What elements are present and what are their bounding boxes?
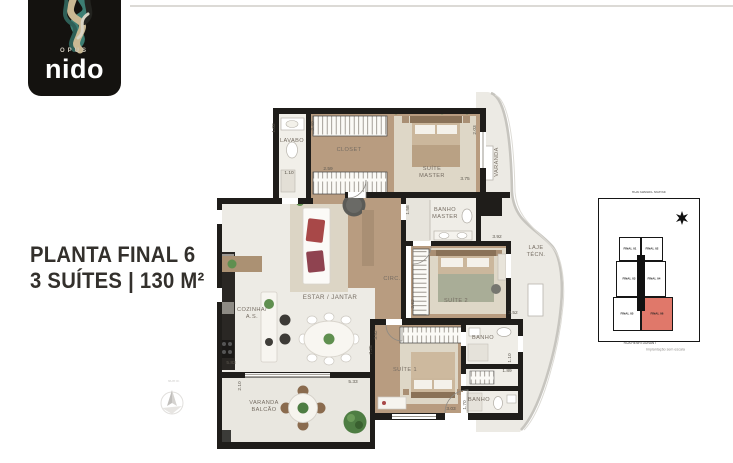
room-label-cozinha-2: A.S.: [246, 314, 258, 320]
keyplan-unit-2-label: FINAL 02: [646, 248, 659, 251]
room-label-laje-2: TÉCN.: [527, 251, 546, 258]
opus-nido-logo: OPUS nido: [28, 0, 121, 96]
keyplan-unit-3-label: FINAL 03: [622, 278, 635, 281]
room-label-circ: CIRC.: [383, 276, 400, 282]
keyplan-unit-1-label: FINAL 01: [624, 248, 637, 251]
laje-tecn-box: [528, 284, 543, 316]
room-label-cozinha-1: COZINHA/: [237, 307, 267, 313]
room-label-banho-master-1: BANHO: [434, 207, 456, 213]
page: { "logo": { "brand_top": "OPUS", "brand"…: [0, 0, 733, 458]
suite1-closet: [400, 327, 462, 343]
keyplan-building: FINAL 01 FINAL 02 FINAL 03 FINAL 04 FINA…: [613, 235, 677, 331]
dim-lavabo-width: 1.02: [271, 123, 277, 133]
north-arrow-icon: [156, 386, 190, 420]
room-label-suite-1: SUÍTE 1: [393, 366, 417, 373]
room-label-banho-2: BANHO: [468, 397, 490, 403]
north-label: NORTE: [168, 380, 179, 383]
top-divider-line: [130, 5, 733, 7]
room-label-suite-master-2: MASTER: [419, 173, 445, 179]
keyplan-unit-5-label: FINAL 05: [621, 313, 634, 316]
keyplan-core: [637, 255, 645, 311]
dim-balcony-width: 5.33: [348, 379, 358, 385]
dim-closet-width: 2.59: [323, 166, 333, 172]
dim-suite-2-depth: 2.62: [410, 299, 416, 309]
logo-brand: nido: [28, 54, 121, 85]
keyplan: RUA SAMUEL MORSE FINAL 01 FINAL 02 FINAL…: [598, 198, 700, 342]
room-label-lavabo: LAVABO: [280, 138, 304, 144]
keyplan-unit-6-label: FINAL 06: [651, 313, 664, 316]
dim-banho-1-depth: 1.10: [507, 353, 513, 363]
varanda-bench: [485, 146, 493, 180]
console-table: [362, 210, 374, 266]
north-star-icon: [675, 211, 689, 225]
closet-wardrobe-top: [313, 116, 387, 136]
dim-suite-2-width: 3.52: [508, 310, 518, 316]
keyplan-street-bottom: RUA HENRI DUNANT: [618, 342, 662, 411]
dim-lavabo-depth: 1.10: [284, 170, 294, 176]
dim-closet-height: 2.40: [310, 121, 316, 131]
plan-title-line2: 3 SUÍTES | 130 M²: [30, 268, 205, 294]
dim-banho-master-width: 3.92: [492, 234, 502, 240]
balcony-plant-icon: [344, 411, 367, 434]
plan-title-line1: PLANTA FINAL 6: [30, 242, 205, 268]
room-label-suite-master-1: SUÍTE: [423, 165, 441, 172]
room-label-estar-jantar: ESTAR / JANTAR: [303, 294, 358, 301]
room-label-closet: CLOSET: [337, 147, 362, 153]
dim-living-height: 7.25: [368, 345, 374, 355]
room-label-varanda-balcao-1: VARANDA: [249, 400, 278, 406]
keyplan-unit-4-label: FINAL 04: [647, 278, 660, 281]
keyplan-street-top: RUA SAMUEL MORSE: [622, 191, 677, 194]
dim-balcony-depth: 2.10: [237, 381, 243, 391]
dim-banho-2-depth: 1.70: [462, 400, 468, 410]
north-compass: NORTE: [156, 380, 190, 420]
dim-suite-1-width: 3.03: [446, 406, 456, 412]
closet-wardrobe-bottom: [313, 172, 387, 194]
dim-kitchen: 5.83: [226, 360, 236, 366]
room-label-suite-2: SUÍTE 2: [444, 297, 468, 304]
dining-table-icon: [299, 313, 359, 365]
dim-banho-hall: 1.89: [502, 368, 512, 374]
shower-banho-master: [406, 198, 430, 241]
room-label-banho-master-2: MASTER: [432, 214, 458, 220]
dim-suite-master-depth: 2.03: [472, 125, 478, 135]
room-label-laje-1: LAJE: [529, 245, 544, 251]
room-label-varanda: VARANDA: [494, 147, 500, 176]
dim-suite-master-width: 3.75: [460, 176, 470, 182]
floorplan: LAVABO CLOSET SUÍTE MASTER VARANDA BANHO…: [208, 92, 573, 458]
room-label-banho-1: BANHO: [472, 335, 494, 341]
hall-shelf: [470, 371, 494, 384]
keyplan-unit-6-highlighted: FINAL 06: [641, 297, 673, 331]
floor-circ: [375, 198, 401, 324]
dim-banho-master: 1.58: [405, 205, 411, 215]
dim-suite-1-depth: 3.52: [373, 330, 379, 340]
room-label-varanda-balcao-2: BALCÃO: [251, 406, 276, 413]
sofa-icon: [303, 208, 330, 284]
plan-title: PLANTA FINAL 6 3 SUÍTES | 130 M²: [30, 242, 205, 294]
keyplan-caption: Implantação sem escala: [646, 348, 685, 352]
